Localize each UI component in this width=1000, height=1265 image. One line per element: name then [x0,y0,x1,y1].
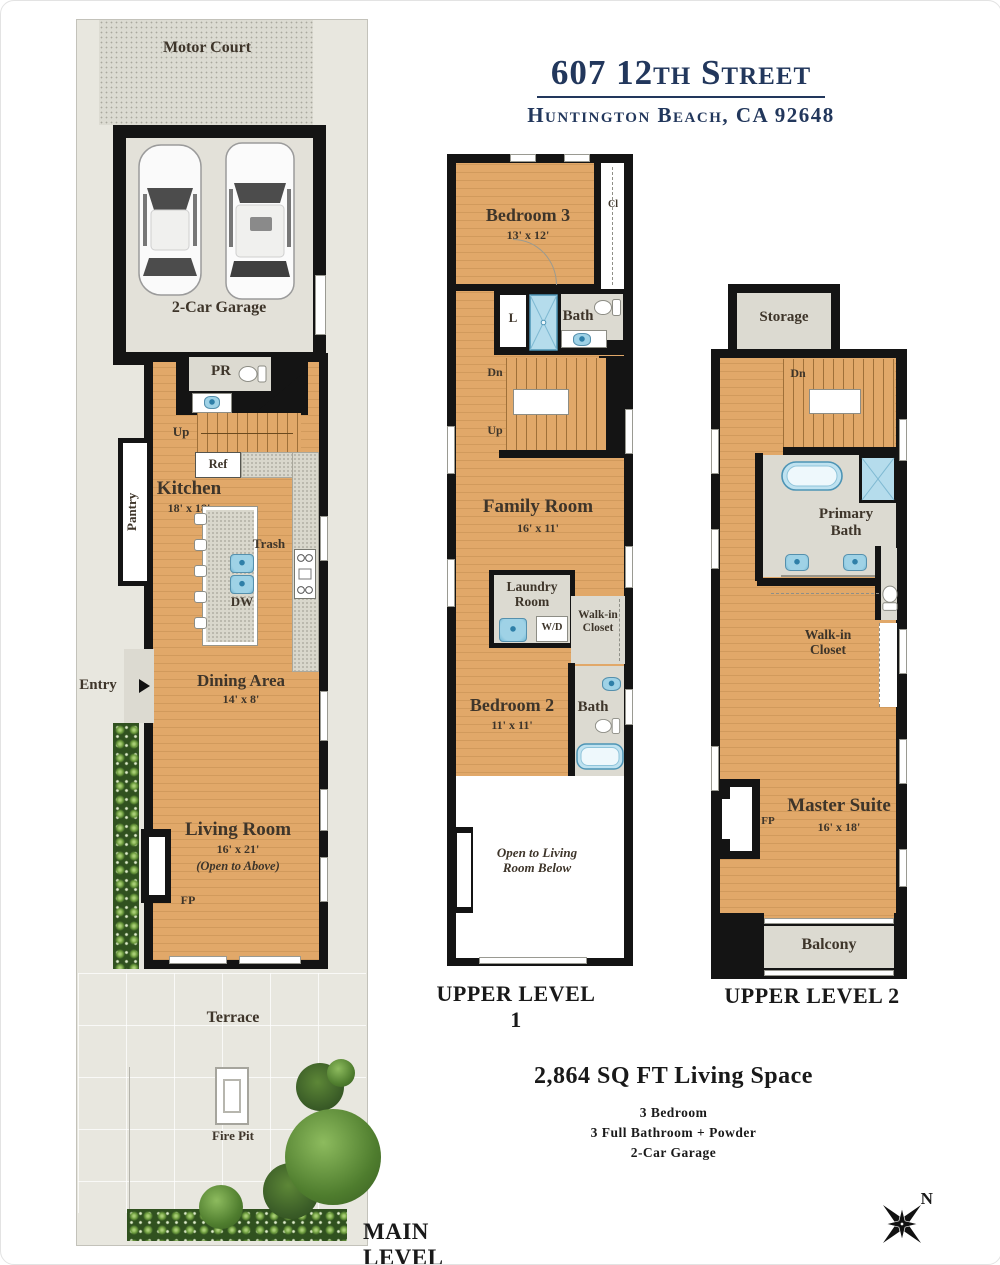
balcony-label: Balcony [764,936,894,954]
window [625,546,633,588]
primary-shower-icon [859,455,897,503]
terrace-label: Terrace [201,1009,265,1027]
window [479,957,587,964]
closet-hatch [771,593,879,594]
ref-label: Ref [195,457,241,471]
dining-label: Dining Area [181,671,301,690]
pr-label: PR [205,363,237,380]
bedroom3-dims: 13' x 12' [498,229,558,242]
window [510,154,536,162]
freestanding-tub-icon [781,461,843,491]
tree-icon [199,1185,243,1229]
open-note: Open to Living Room Below [481,846,593,875]
bedroom3-label: Bedroom 3 [468,205,588,225]
wall-segment [594,163,601,289]
master-suite-dims: 16' x 18' [804,821,874,834]
side-hedge [113,723,139,969]
stairs-up-main [197,413,301,455]
motor-court [99,20,313,125]
bath-bottom-sink-icon [602,677,621,691]
upper-level-2-label: UPPER LEVEL 2 [723,983,901,1009]
fp-label-main: FP [175,894,201,907]
window [320,516,328,561]
fireplace-main-box [149,837,165,895]
wd-label: W/D [536,622,568,634]
walkin-label-ul2: Walk-in Closet [789,627,867,657]
pantry-label: Pantry [125,453,145,571]
closet-door-dashed [612,167,613,285]
primary-sink-icon [785,554,809,571]
entry-label: Entry [75,677,121,694]
tree-icon [285,1109,381,1205]
floor-plan-page: 607 12th Street Huntington Beach, CA 926… [0,0,1000,1265]
island-stool [194,513,207,525]
motor-court-label: Motor Court [161,39,253,57]
family-room-dims: 16' x 11' [503,522,573,535]
window [899,739,907,784]
primary-sink-icon [843,554,867,571]
window [899,629,907,674]
family-room-label: Family Room [473,496,603,517]
window [711,529,719,569]
stair-landing [513,389,569,415]
living-label: Living Room [178,819,298,840]
bedroom2-label: Bedroom 2 [454,695,570,715]
window [625,409,633,454]
wall-segment [499,450,625,458]
island-stool [194,617,207,629]
master-suite-label: Master Suite [769,795,909,816]
upper-level-1-label: UPPER LEVEL 1 [430,981,602,1033]
window [711,429,719,474]
bedroom2-dims: 11' x 11' [482,719,542,732]
fireplace-ul2-hearth [722,799,730,839]
window [447,559,455,607]
shower-icon [529,294,558,351]
pr-sink-icon [204,396,220,409]
stove-icon [294,549,316,599]
dn-label-ul2: Dn [785,367,811,380]
sqft-label: 2,864 SQ FT Living Space [506,1063,841,1090]
walkin-label-ul1: Walk-in Closet [571,609,625,635]
stair-landing [809,389,861,414]
window [320,857,328,902]
laundry-sink-icon [499,618,527,642]
suv-car-icon [222,139,298,303]
island-cooktop-icon [230,554,254,573]
living-open-note: (Open to Above) [188,859,288,873]
fireplace-ul2-box [730,787,752,851]
window [564,154,590,162]
garage-label: 2-Car Garage [169,299,269,317]
laundry-label: Laundry Room [498,579,566,609]
fire-pit-label: Fire Pit [205,1129,261,1144]
wall-segment [783,447,905,455]
page-title: 607 12th Street [537,53,825,98]
primary-bath-label: Primary Bath [807,506,885,540]
island-stool [194,591,207,603]
bath-bottom-toilet-icon [594,716,622,736]
summary-bathrooms: 3 Full Bathroom + Powder [506,1125,841,1141]
page-subtitle: Huntington Beach, CA 92648 [481,103,881,128]
wall-segment [568,663,575,778]
dn-label-ul1: Dn [482,366,508,379]
compass-north-label: N [917,1189,937,1209]
stairs-up-line [201,433,293,434]
window [239,956,301,964]
window [320,789,328,831]
garage-door-opening [315,275,326,335]
island-stool [194,565,207,577]
island-sink-icon [230,575,254,594]
balcony-railing [764,970,894,976]
up-label-ul1: Up [482,424,508,437]
wall-segment [755,453,763,581]
fire-pit-inner [223,1079,241,1113]
trash-label: Trash [246,537,292,552]
primary-toilet-icon [880,583,900,613]
bathtub-icon [576,743,624,770]
window [899,419,907,461]
window [899,849,907,887]
wall-segment [757,578,877,586]
terrace-paving-line [129,1067,130,1215]
window [711,746,719,791]
closet-hatch [619,599,620,661]
bath-bottom-label: Bath [572,699,614,716]
wall-segment [894,913,907,977]
bath-top-sink-icon [573,333,591,346]
balcony-railing [764,918,894,924]
pr-toilet-icon [237,363,269,385]
up-label-main: Up [167,425,195,440]
sedan-car-icon [135,140,205,300]
summary-bedrooms: 3 Bedroom [506,1105,841,1121]
window [320,691,328,741]
wall-segment [720,913,764,977]
main-level-label: MAIN LEVEL [363,1219,509,1265]
island-stool [194,539,207,551]
window [625,689,633,725]
fireplace-ul1-box [457,833,471,907]
kitchen-label: Kitchen [151,478,227,499]
window [169,956,227,964]
title-block: 607 12th Street Huntington Beach, CA 926… [481,53,881,137]
window [447,426,455,474]
summary-garage: 2-Car Garage [506,1145,841,1161]
fp-label-ul2: FP [756,815,780,827]
bath-top-toilet-icon [593,297,623,318]
living-dims: 16' x 21' [208,843,268,856]
linen-label: L [502,311,524,326]
dw-label: DW [227,595,257,610]
storage-label: Storage [737,309,831,326]
dining-dims: 14' x 8' [211,693,271,706]
cl-label: Cl [605,199,621,210]
tree-icon [327,1059,355,1087]
entry-arrow-icon [139,679,150,693]
closet-hatch-strip [879,623,897,707]
